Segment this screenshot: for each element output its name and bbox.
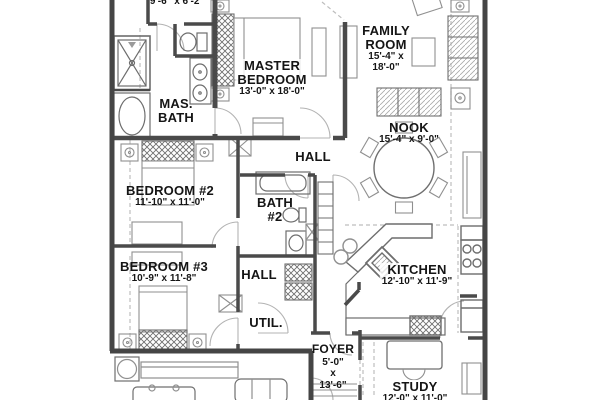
room-label-bath2: BATH #2 (257, 196, 293, 224)
bar-stool (334, 250, 348, 264)
floorplan-image: 9'-6" x 6'-2" MASTER BEDROOM 13'-0" x 18… (0, 0, 600, 400)
sofa (448, 16, 478, 80)
nightstand (119, 334, 136, 351)
buffet (463, 152, 481, 218)
shower (114, 36, 150, 90)
room-label-kitchen: KITCHEN 12'-10" x 11'-9" (380, 263, 454, 288)
nightstand (121, 144, 138, 161)
refrigerator (461, 300, 483, 332)
room-label-bedroom3: BEDROOM #3 10'-9" x 11'-8" (120, 260, 208, 285)
dresser (312, 28, 326, 76)
window-seat (253, 118, 283, 136)
planter-box (115, 357, 139, 381)
bathtub (114, 93, 150, 139)
room-label-study: STUDY 12'-0" x 11'-0" (383, 380, 448, 400)
toilet2-tank (299, 208, 306, 222)
range (461, 240, 483, 274)
room-label-foyer: FOYER 5'-0" x 13'-6" (312, 343, 354, 391)
nightstand (196, 144, 213, 161)
closet-dimension-label: 9'-6" x 6'-2" (150, 0, 204, 8)
window-bench (462, 363, 481, 394)
room-label-family-room: FAMILY ROOM 15'-4" x 18'-0" (362, 24, 410, 74)
porch-items (115, 357, 287, 400)
room-label-hall-lower: HALL (241, 268, 276, 282)
media-console (340, 26, 357, 78)
bed2-pillows (142, 141, 194, 161)
porch-bench (141, 362, 238, 378)
dryer (285, 283, 312, 300)
bed3-mattress (139, 286, 187, 332)
room-label-master-bedroom: MASTER BEDROOM 13'-0" x 18'-0" (235, 59, 308, 98)
upper-cabinet (461, 226, 483, 240)
washer (285, 264, 312, 281)
nightstand (189, 334, 206, 351)
room-label-hall-upper: HALL (295, 150, 330, 164)
dresser (132, 222, 182, 244)
desk (387, 341, 442, 369)
room-label-master-bath: MAS. BATH (158, 97, 194, 125)
patio-seat (235, 379, 287, 400)
room-label-utility: UTIL. (249, 316, 283, 330)
loveseat (377, 88, 441, 116)
dining-table (374, 138, 434, 198)
accent-chair (412, 0, 442, 16)
room-label-nook: NOOK 15'-4" x 9'-0" (379, 121, 439, 146)
armchair (412, 38, 435, 66)
bed3-pillows (139, 330, 187, 350)
dishwasher (410, 316, 441, 335)
room-label-bedroom2: BEDROOM #2 11'-10" x 11'-0" (126, 184, 214, 209)
patio-table (133, 387, 195, 400)
